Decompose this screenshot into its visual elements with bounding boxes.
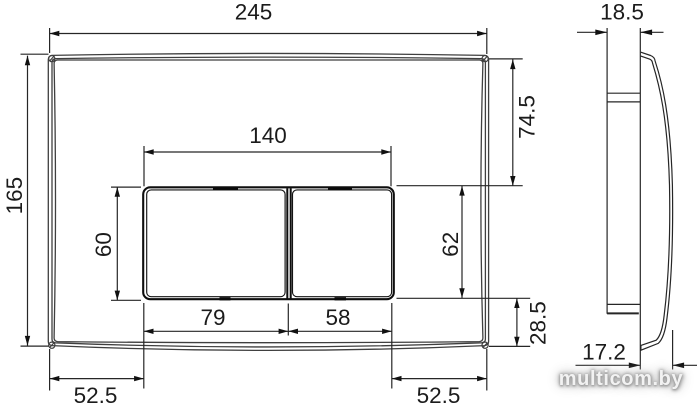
svg-text:17.2: 17.2 — [582, 340, 626, 365]
svg-text:74.5: 74.5 — [514, 95, 539, 139]
svg-text:62: 62 — [438, 232, 463, 257]
svg-text:18.5: 18.5 — [600, 0, 644, 25]
svg-text:79: 79 — [200, 305, 225, 330]
svg-text:58: 58 — [325, 305, 350, 330]
svg-text:165: 165 — [2, 177, 27, 215]
svg-text:140: 140 — [249, 123, 287, 148]
svg-text:60: 60 — [91, 232, 116, 257]
svg-text:245: 245 — [235, 0, 273, 25]
svg-text:52.5: 52.5 — [417, 383, 461, 404]
svg-text:52.5: 52.5 — [74, 383, 118, 404]
svg-text:28.5: 28.5 — [526, 301, 551, 345]
